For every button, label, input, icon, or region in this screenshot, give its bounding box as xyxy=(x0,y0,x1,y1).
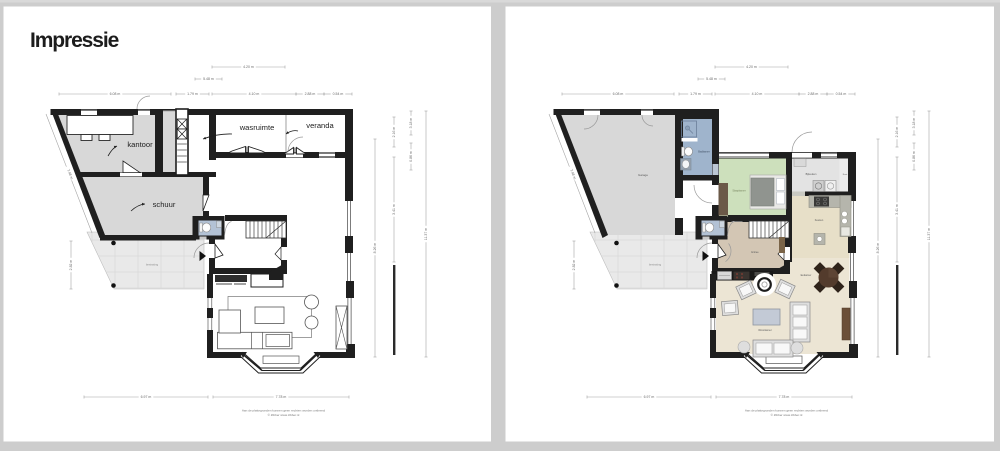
svg-text:veranda: veranda xyxy=(306,121,334,130)
svg-text:3.41 m: 3.41 m xyxy=(895,204,899,215)
svg-text:Garage: Garage xyxy=(638,173,648,177)
svg-text:3.18 m: 3.18 m xyxy=(912,118,916,129)
svg-text:0.54 m: 0.54 m xyxy=(333,92,344,96)
svg-text:6.97 m: 6.97 m xyxy=(644,395,655,399)
svg-text:2.88 m: 2.88 m xyxy=(808,92,819,96)
svg-text:3.18 m: 3.18 m xyxy=(409,118,413,129)
svg-text:Badkamer: Badkamer xyxy=(698,151,710,154)
svg-text:Woonkamer: Woonkamer xyxy=(758,329,772,332)
svg-text:5.48 m: 5.48 m xyxy=(203,77,214,81)
svg-text:4.10 m: 4.10 m xyxy=(752,92,763,96)
svg-text:2.16 m: 2.16 m xyxy=(392,127,396,138)
svg-text:8.26 m: 8.26 m xyxy=(876,243,880,254)
svg-text:Entree: Entree xyxy=(751,251,759,254)
svg-text:bestrating: bestrating xyxy=(649,263,662,267)
svg-text:bestrating: bestrating xyxy=(146,263,159,267)
svg-text:Kast: Kast xyxy=(843,173,848,176)
svg-text:1.79 m: 1.79 m xyxy=(690,92,701,96)
svg-text:7.78 m: 7.78 m xyxy=(779,395,790,399)
svg-text:Slaapkamer: Slaapkamer xyxy=(732,190,746,193)
svg-text:6.08 m: 6.08 m xyxy=(110,92,121,96)
svg-text:6.08 m: 6.08 m xyxy=(613,92,624,96)
svg-text:© Zibber www.zibber.nl: © Zibber www.zibber.nl xyxy=(268,413,300,417)
svg-text:7.78 m: 7.78 m xyxy=(276,395,287,399)
svg-text:2.88 m: 2.88 m xyxy=(305,92,316,96)
svg-text:11.37 m: 11.37 m xyxy=(927,228,931,240)
svg-text:3.41 m: 3.41 m xyxy=(392,204,396,215)
svg-text:0.54 m: 0.54 m xyxy=(836,92,847,96)
svg-text:4.20 m: 4.20 m xyxy=(746,65,757,69)
svg-text:schuur: schuur xyxy=(153,200,176,209)
svg-text:4.20 m: 4.20 m xyxy=(243,65,254,69)
svg-text:Bijkeuken: Bijkeuken xyxy=(806,173,817,176)
svg-text:4.10 m: 4.10 m xyxy=(249,92,260,96)
svg-text:0.86 m: 0.86 m xyxy=(409,151,413,162)
svg-text:2.16 m: 2.16 m xyxy=(895,127,899,138)
svg-text:kantoor: kantoor xyxy=(127,140,153,149)
svg-text:Impressie: Impressie xyxy=(30,29,119,52)
svg-text:8.26 m: 8.26 m xyxy=(373,243,377,254)
svg-text:5.48 m: 5.48 m xyxy=(706,77,717,81)
svg-text:2.82 m: 2.82 m xyxy=(572,260,576,271)
svg-text:Eetkamer: Eetkamer xyxy=(801,274,812,277)
svg-text:© Zibber www.zibber.nl: © Zibber www.zibber.nl xyxy=(771,413,803,417)
svg-text:0.86 m: 0.86 m xyxy=(912,151,916,162)
svg-text:1.79 m: 1.79 m xyxy=(187,92,198,96)
svg-text:11.37 m: 11.37 m xyxy=(424,228,428,240)
svg-text:Aan de plattegronden kunnen ge: Aan de plattegronden kunnen geen rechten… xyxy=(242,409,326,413)
svg-text:6.97 m: 6.97 m xyxy=(141,395,152,399)
svg-text:2.82 m: 2.82 m xyxy=(69,260,73,271)
svg-text:Keuken: Keuken xyxy=(815,219,824,222)
svg-text:wasruimte: wasruimte xyxy=(239,123,275,132)
svg-text:Aan de plattegronden kunnen ge: Aan de plattegronden kunnen geen rechten… xyxy=(745,409,829,413)
